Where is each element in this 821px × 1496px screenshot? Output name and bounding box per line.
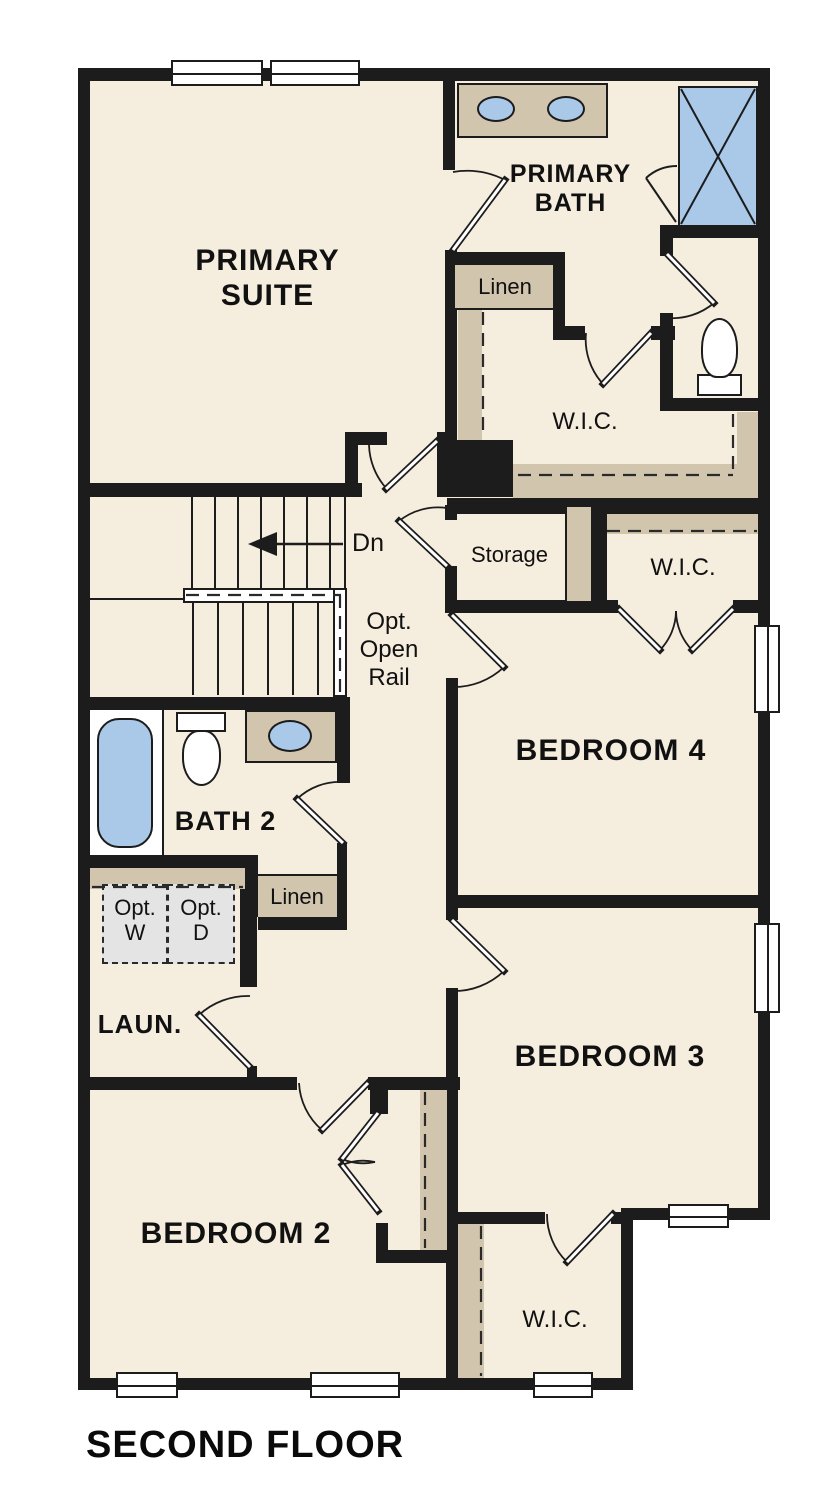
wall-suite-jog-horizontal [345,432,387,445]
wall-linen1-top [445,252,565,265]
wall-suite-bottom [78,483,362,497]
wall-storage-left-a [445,505,457,520]
label-wic-primary: W.I.C. [535,408,635,436]
wall-closet2-jamb [370,1090,388,1114]
window-mullion [272,73,358,75]
wall-wic3-left [446,1212,458,1390]
wic2-shelf [607,514,758,534]
wall-storage-right [593,503,607,603]
label-linen-primary: Linen [460,274,550,299]
label-storage: Storage [452,542,567,567]
label-line: SUITE [150,279,385,314]
label-line: Opt. [167,895,235,920]
wall-bed3-bed4 [446,895,770,908]
label-bedroom2: BEDROOM 2 [110,1217,362,1252]
label-primary-suite: PRIMARY SUITE [150,244,385,313]
label-open-rail: Opt. Open Rail [346,608,432,692]
wall-suite-bath [443,68,455,170]
label-primary-bath: PRIMARY BATH [488,160,653,218]
wic3-shelf [458,1224,484,1378]
stair-open-rail-vertical [333,588,347,697]
label-optional-washer: Opt. W [102,895,168,945]
wall-wic3-right [621,1214,633,1390]
label-line: Opt. [102,895,168,920]
wall-bath2-right-a [337,710,350,783]
wall-wic2-door-stub [733,600,770,613]
storage-chase [565,505,593,603]
wall-laundry-right [240,917,257,987]
wall-laundry-bottom [78,1077,297,1090]
label-bedroom3: BEDROOM 3 [485,1040,735,1075]
wall-bed2-entry-right [368,1077,460,1090]
wall-hall-right-a [446,678,458,920]
wall-suite-jog-vertical [345,438,358,497]
toilet-bath2-tank [176,712,226,732]
window-bedroom2-bottom-right [310,1372,400,1398]
wall-wc-left-lower [660,313,673,400]
page-title: SECOND FLOOR [86,1424,404,1467]
label-line: Rail [346,664,432,692]
wall-linen1-step [553,326,585,340]
wic1-shelf-bottom [513,464,758,498]
window-mullion [535,1385,591,1387]
label-line: PRIMARY [488,160,653,189]
stair-open-rail-horizontal [183,588,347,603]
label-line: PRIMARY [150,244,385,279]
wall-wc-left-upper [660,236,673,256]
window-suite-top-left [171,60,263,86]
wall-linen1-right [553,252,565,332]
label-line: Open [346,636,432,664]
label-laundry: LAUN. [90,1010,190,1040]
wall-bath2-bottom [78,855,258,868]
sink-primary-left [477,96,515,122]
window-bedroom3-right [754,923,780,1013]
wall-wic3-top-stub [611,1212,633,1224]
label-line: BATH [488,189,653,218]
window-mullion [312,1385,398,1387]
label-linen-hall: Linen [256,884,338,909]
window-mullion [173,73,261,75]
label-line: D [167,920,235,945]
label-bedroom4: BEDROOM 4 [486,734,736,769]
floor-plan-page: PRIMARY SUITE PRIMARY BATH Linen W.I.C. … [0,0,821,1496]
window-bedroom4-right [754,625,780,713]
window-mullion [670,1216,727,1218]
window-wic3-bottom [533,1372,593,1398]
wall-suite-door-stub [437,432,457,497]
window-mullion [118,1385,176,1387]
wall-wc-bottom [660,398,770,411]
label-optional-dryer: Opt. D [167,895,235,945]
window-mullion [767,925,769,1011]
bedroom2-closet-shelf [420,1090,447,1250]
wall-closet2-stub [376,1223,388,1253]
label-wic-bedroom3: W.I.C. [504,1306,606,1334]
bathtub [97,718,153,848]
sink-primary-right [547,96,585,122]
window-bedroom3-bottom [668,1204,729,1228]
wic1-shelf-left [458,310,482,440]
window-suite-top-right [270,60,360,86]
label-stairs-dn: Dn [347,529,389,558]
wall-stair-bottom [78,697,350,710]
wall-linen2-bottom [258,917,347,930]
wic1-shelf-right [737,412,758,468]
toilet-wc-bowl [701,318,738,378]
shower [678,86,758,227]
wall-hall-right-b [446,988,458,1214]
wall-exterior-left [78,68,90,1390]
window-mullion [767,627,769,711]
label-line: Opt. [346,608,432,636]
window-bedroom2-bottom-left [116,1372,178,1398]
wall-wic3-top [446,1212,545,1224]
label-line: W [102,920,168,945]
sink-bath2 [268,720,312,752]
label-bath2: BATH 2 [148,806,303,837]
label-wic-bedroom4: W.I.C. [632,554,734,582]
wall-below-wic1 [447,498,770,514]
toilet-bath2-bowl [182,730,221,786]
